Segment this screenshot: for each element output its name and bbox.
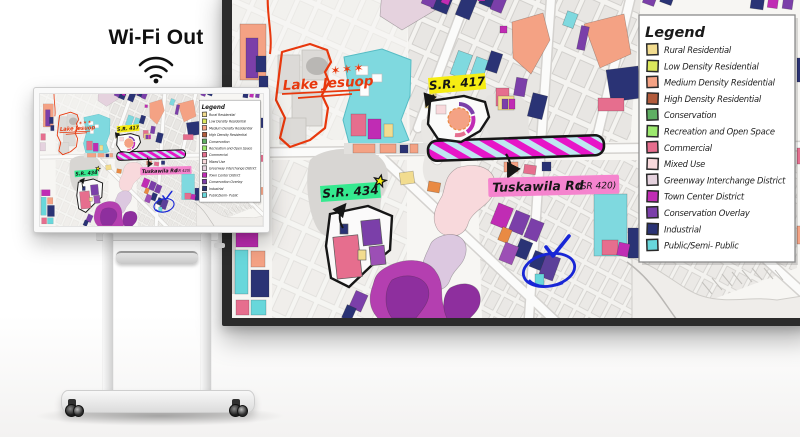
stand-leg-left <box>103 233 113 393</box>
legend-swatch <box>647 76 658 87</box>
legend-title: Legend <box>645 25 706 41</box>
legend-swatch <box>647 93 658 104</box>
legend-item: Recreation and Open Space <box>647 126 775 137</box>
wifi-out-label: Wi-Fi Out <box>104 26 208 89</box>
legend-label: Recreation and Open Space <box>664 127 775 137</box>
legend-swatch <box>647 109 658 120</box>
tuskawila-label-suffix: (SR 420) <box>577 181 616 192</box>
legend-item: Industrial <box>647 223 702 234</box>
stand-base <box>61 390 255 413</box>
zoning-map-svg: Lake Jesuop ✶✶✶ S.R. 417 <box>232 0 800 318</box>
zoning-map: Lake Jesuop ✶✶✶ S.R. 417 <box>232 0 800 318</box>
legend-label: Greenway Interchange District <box>664 175 786 185</box>
legend-swatch <box>647 158 658 169</box>
legend-label: High Density Residential <box>664 94 762 104</box>
large-display-screen: Lake Jesuop ✶✶✶ S.R. 417 <box>232 0 800 318</box>
map-legend: Legend Rural Residential Low Density Res… <box>639 15 798 265</box>
caster-wheel <box>62 399 82 417</box>
legend-swatch <box>647 60 658 71</box>
zoning-map-mirror-svg <box>40 94 263 226</box>
legend-label: Industrial <box>664 224 702 234</box>
legend-label: Conservation Overlay <box>664 208 751 218</box>
legend-label: Low Density Residential <box>664 61 759 71</box>
stand-leg-right <box>201 233 211 393</box>
scene: Lake Jesuop ✶✶✶ S.R. 417 <box>0 0 800 437</box>
legend-swatch <box>647 191 658 202</box>
legend-label: Commercial <box>664 143 713 153</box>
legend-swatch <box>647 239 658 250</box>
legend-item: Low Density Residential <box>647 60 760 71</box>
legend-label: Medium Density Residential <box>664 78 776 88</box>
legend-label: Town Center District <box>664 192 745 202</box>
legend-item: Greenway Interchange District <box>647 174 786 185</box>
portable-display <box>33 87 270 233</box>
large-display: Lake Jesuop ✶✶✶ S.R. 417 <box>222 0 800 326</box>
legend-label: Public/Semi- Public <box>664 241 739 251</box>
legend-label: Mixed Use <box>664 159 705 169</box>
caster-wheel <box>226 399 246 417</box>
stand-tray <box>116 251 198 264</box>
legend-item: High Density Residential <box>647 93 762 104</box>
legend-item: Conservation <box>647 109 717 120</box>
legend-swatch <box>647 126 658 137</box>
legend-swatch <box>647 223 658 234</box>
legend-swatch <box>647 207 658 218</box>
legend-label: Conservation <box>664 110 716 120</box>
portable-display-screen <box>39 93 264 227</box>
legend-swatch <box>647 174 658 185</box>
wifi-out-text: Wi-Fi Out <box>104 26 208 50</box>
wifi-icon <box>136 54 176 84</box>
legend-item: Commercial <box>647 141 713 152</box>
legend-label: Rural Residential <box>664 45 732 55</box>
legend-item: Mixed Use <box>647 158 705 169</box>
legend-item: Medium Density Residential <box>647 76 776 87</box>
legend-swatch <box>647 141 658 152</box>
floor-shadow <box>34 406 286 426</box>
legend-swatch <box>647 44 658 55</box>
tuskawila-label: Tuskawila Rd <box>492 177 585 194</box>
